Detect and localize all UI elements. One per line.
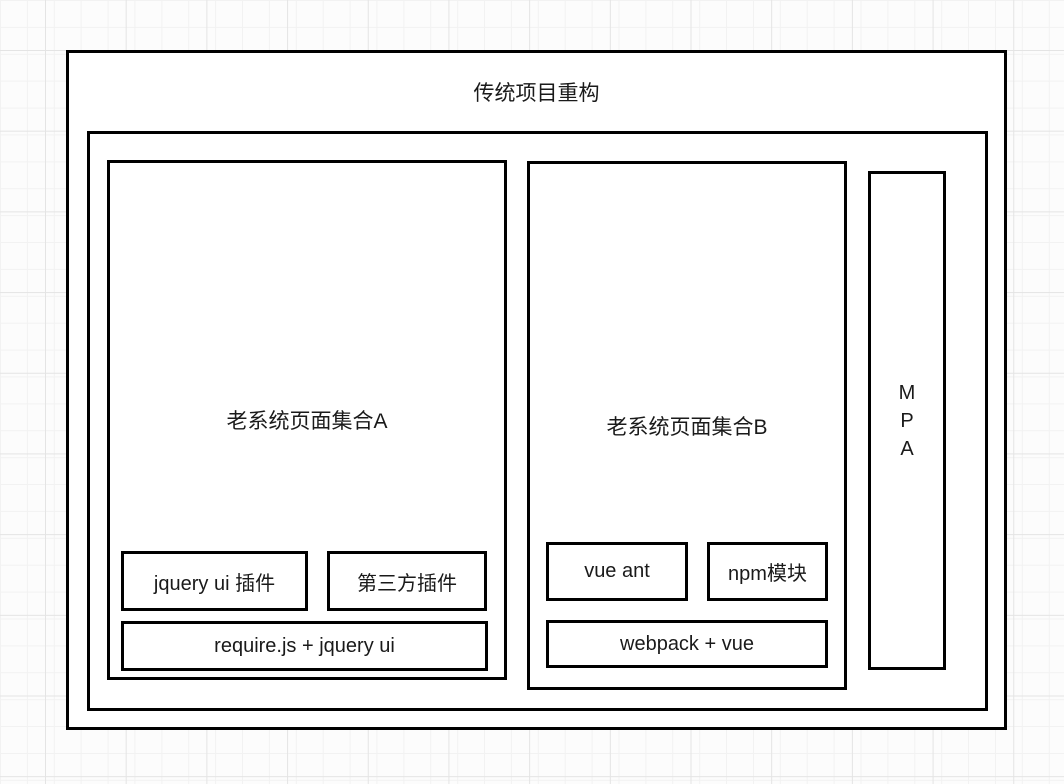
- webpack-vue-base-box: webpack + vue: [546, 620, 828, 668]
- mpa-box: M P A: [868, 171, 946, 670]
- mpa-label: M P A: [899, 379, 916, 463]
- third-party-plugin-box: 第三方插件: [327, 551, 487, 611]
- npm-module-box: npm模块: [707, 542, 828, 601]
- legacy-pages-a-label: 老系统页面集合A: [110, 405, 504, 435]
- legacy-pages-b-label: 老系统页面集合B: [530, 411, 844, 441]
- legacy-pages-b-box: 老系统页面集合B: [527, 161, 847, 690]
- diagram-title: 传统项目重构: [69, 77, 1004, 107]
- diagram-canvas: 传统项目重构 老系统页面集合A 老系统页面集合B M P A jquery ui…: [0, 0, 1064, 784]
- vue-ant-box: vue ant: [546, 542, 688, 601]
- jquery-ui-plugin-box: jquery ui 插件: [121, 551, 308, 611]
- requirejs-jqueryui-base-box: require.js + jquery ui: [121, 621, 488, 671]
